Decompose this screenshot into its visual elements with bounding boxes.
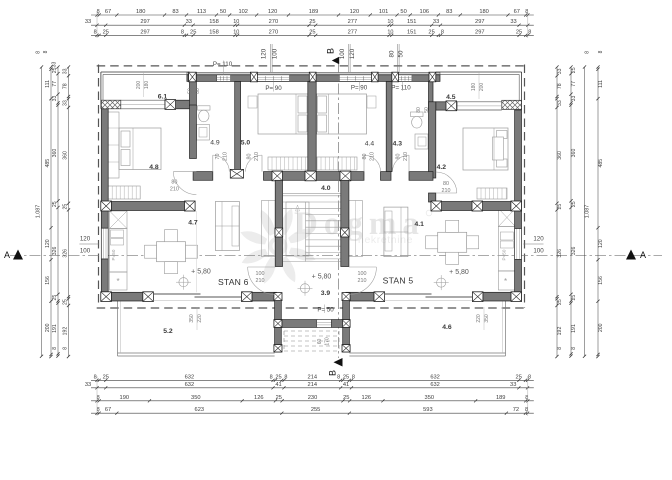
svg-text:100: 100 (256, 271, 265, 277)
svg-text:277: 277 (348, 19, 358, 25)
svg-text:297: 297 (140, 29, 150, 35)
svg-text:80: 80 (195, 88, 201, 94)
svg-text:STAN 5: STAN 5 (383, 276, 414, 286)
svg-text:50: 50 (424, 107, 430, 113)
svg-text:33: 33 (433, 19, 439, 25)
svg-text:4.3: 4.3 (393, 141, 403, 148)
svg-text:120: 120 (533, 236, 544, 243)
svg-text:25: 25 (309, 19, 315, 25)
svg-text:326: 326 (557, 249, 563, 258)
svg-text:632: 632 (185, 374, 195, 380)
svg-text:80: 80 (443, 181, 449, 187)
svg-text:632: 632 (185, 382, 195, 388)
svg-text:8: 8 (528, 374, 531, 380)
svg-text:120: 120 (261, 48, 268, 59)
svg-text:5.2: 5.2 (163, 328, 173, 335)
svg-text:101: 101 (379, 9, 389, 15)
svg-text:485: 485 (45, 159, 51, 168)
svg-text:50: 50 (400, 9, 406, 15)
svg-text:200: 200 (598, 323, 604, 332)
svg-text:4.4: 4.4 (365, 141, 375, 148)
svg-text:632: 632 (430, 374, 440, 380)
svg-text:200: 200 (45, 323, 51, 332)
svg-text:120: 120 (268, 9, 278, 15)
svg-text:210: 210 (442, 188, 451, 194)
svg-text:8: 8 (352, 374, 355, 380)
svg-text:4.7: 4.7 (188, 220, 198, 227)
svg-text:8: 8 (571, 347, 577, 350)
svg-text:190: 190 (120, 395, 130, 401)
svg-text:230: 230 (308, 395, 318, 401)
svg-text:120: 120 (45, 239, 51, 248)
svg-text:8: 8 (43, 50, 49, 53)
svg-text:8: 8 (181, 29, 184, 35)
svg-text:5.0: 5.0 (241, 140, 251, 147)
svg-text:33: 33 (63, 68, 69, 74)
svg-text:25: 25 (52, 295, 58, 301)
svg-text:191: 191 (52, 324, 58, 333)
svg-text:151: 151 (407, 29, 417, 35)
svg-text:8: 8 (598, 50, 604, 53)
svg-text:210: 210 (170, 187, 179, 193)
svg-text:25: 25 (557, 204, 563, 210)
svg-text:8: 8 (63, 347, 69, 350)
svg-text:8: 8 (284, 374, 287, 380)
svg-text:77: 77 (571, 81, 577, 87)
svg-text:120: 120 (80, 236, 91, 243)
svg-text:189: 189 (496, 395, 506, 401)
svg-text:70: 70 (215, 154, 221, 160)
svg-text:25: 25 (557, 299, 563, 305)
svg-text:80: 80 (362, 154, 368, 160)
svg-text:33: 33 (52, 62, 58, 68)
svg-text:10: 10 (387, 29, 393, 35)
svg-text:25: 25 (52, 201, 58, 207)
svg-text:100: 100 (533, 248, 544, 255)
svg-text:8: 8 (270, 374, 273, 380)
svg-text:25: 25 (190, 29, 196, 35)
svg-text:67: 67 (514, 9, 520, 15)
svg-text:*: * (116, 277, 119, 286)
svg-text:33: 33 (571, 96, 577, 102)
svg-text:192: 192 (557, 327, 563, 336)
svg-text:25: 25 (343, 374, 349, 380)
svg-text:106: 106 (420, 9, 430, 15)
svg-text:B: B (328, 370, 338, 376)
svg-text:8: 8 (525, 407, 528, 413)
svg-text:4.0: 4.0 (321, 185, 331, 192)
svg-text:33: 33 (557, 68, 563, 74)
svg-text:+ 5,80: + 5,80 (449, 269, 469, 276)
svg-text:25: 25 (516, 374, 522, 380)
svg-text:67: 67 (105, 407, 111, 413)
svg-text:210: 210 (223, 152, 229, 161)
svg-text:326: 326 (52, 246, 58, 255)
svg-text:1.087: 1.087 (584, 205, 590, 219)
svg-text:25: 25 (428, 29, 434, 35)
svg-text:180: 180 (471, 83, 477, 92)
svg-text:189: 189 (309, 9, 319, 15)
svg-text:126: 126 (254, 395, 264, 401)
svg-text:33: 33 (510, 19, 516, 25)
svg-text:111: 111 (598, 80, 604, 88)
svg-text:156: 156 (45, 276, 51, 285)
svg-text:P=50: P=50 (502, 249, 507, 260)
svg-text:180: 180 (144, 81, 150, 90)
svg-text:210: 210 (358, 278, 367, 284)
svg-text:60: 60 (317, 339, 323, 345)
svg-text:270: 270 (269, 29, 279, 35)
svg-text:50: 50 (188, 88, 194, 94)
svg-text:72: 72 (513, 407, 519, 413)
svg-text:P= 110: P= 110 (391, 85, 411, 92)
svg-text:25: 25 (275, 374, 281, 380)
svg-text:25: 25 (63, 204, 69, 210)
svg-text:4.2: 4.2 (437, 164, 447, 171)
svg-text:100: 100 (80, 248, 91, 255)
svg-text:80: 80 (247, 154, 253, 160)
svg-text:360: 360 (571, 149, 577, 158)
svg-text:83: 83 (446, 9, 452, 15)
svg-text:nekretnine: nekretnine (358, 234, 413, 246)
svg-text:151: 151 (407, 19, 417, 25)
svg-text:8: 8 (584, 51, 590, 54)
svg-text:P= 50: P= 50 (317, 307, 334, 314)
svg-text:78: 78 (63, 83, 69, 89)
svg-text:10: 10 (233, 19, 239, 25)
svg-text:8: 8 (557, 347, 563, 350)
svg-text:158: 158 (209, 29, 219, 35)
svg-text:350: 350 (484, 314, 490, 323)
svg-text:A: A (640, 250, 646, 260)
svg-text:297: 297 (475, 19, 485, 25)
svg-text:50: 50 (220, 9, 226, 15)
svg-text:8: 8 (94, 29, 97, 35)
svg-text:4.5: 4.5 (446, 94, 456, 101)
svg-text:25: 25 (309, 29, 315, 35)
svg-text:41: 41 (343, 382, 349, 388)
svg-text:41: 41 (275, 382, 281, 388)
svg-text:8: 8 (441, 29, 444, 35)
svg-text:+ 5,80: + 5,80 (191, 269, 211, 276)
svg-text:+ 5,80: + 5,80 (312, 274, 332, 281)
svg-text:25: 25 (103, 29, 109, 35)
svg-text:33: 33 (510, 382, 516, 388)
svg-text:8: 8 (94, 374, 97, 380)
svg-text:297: 297 (475, 29, 485, 35)
svg-text:297: 297 (140, 19, 150, 25)
svg-text:25: 25 (343, 395, 349, 401)
svg-text:80: 80 (171, 180, 177, 186)
svg-text:360: 360 (52, 149, 58, 158)
svg-text:350: 350 (425, 395, 435, 401)
svg-text:STAN 6: STAN 6 (218, 277, 249, 287)
svg-text:B: B (326, 48, 336, 54)
svg-text:100: 100 (358, 271, 367, 277)
svg-text:210: 210 (370, 152, 376, 161)
svg-text:156: 156 (598, 276, 604, 285)
svg-text:80: 80 (389, 50, 396, 57)
svg-text:80: 80 (396, 154, 402, 160)
svg-text:8: 8 (528, 29, 531, 35)
svg-text:33: 33 (63, 100, 69, 106)
svg-text:25: 25 (276, 395, 282, 401)
svg-text:220: 220 (197, 314, 203, 323)
svg-text:6.1: 6.1 (158, 94, 168, 101)
svg-text:126: 126 (362, 395, 372, 401)
svg-text:255: 255 (311, 407, 321, 413)
svg-text:8: 8 (36, 51, 42, 54)
svg-text:360: 360 (63, 151, 69, 160)
svg-text:593: 593 (423, 407, 433, 413)
svg-text:4.9: 4.9 (210, 140, 220, 147)
svg-text:210: 210 (254, 152, 260, 161)
svg-text:111: 111 (45, 80, 51, 88)
svg-text:10: 10 (233, 29, 239, 35)
svg-text:67: 67 (105, 9, 111, 15)
svg-text:360: 360 (557, 151, 563, 160)
svg-text:4.8: 4.8 (149, 164, 159, 171)
svg-text:192: 192 (63, 327, 69, 336)
svg-text:200: 200 (136, 81, 142, 90)
svg-text:A: A (4, 250, 10, 260)
svg-text:50: 50 (398, 50, 405, 57)
svg-text:25: 25 (103, 374, 109, 380)
svg-text:3.9: 3.9 (321, 290, 331, 297)
svg-text:632: 632 (430, 382, 440, 388)
svg-text:25: 25 (571, 67, 577, 73)
svg-text:102: 102 (238, 9, 248, 15)
svg-text:P=50: P=50 (111, 249, 116, 260)
svg-text:8: 8 (337, 374, 340, 380)
svg-text:*: * (504, 277, 507, 286)
svg-text:25: 25 (516, 29, 522, 35)
svg-text:100: 100 (272, 48, 279, 59)
svg-text:180: 180 (479, 9, 489, 15)
svg-text:170: 170 (325, 337, 331, 346)
svg-text:350: 350 (189, 314, 195, 323)
svg-text:10: 10 (387, 19, 393, 25)
svg-text:623: 623 (195, 407, 205, 413)
svg-text:158: 158 (209, 19, 219, 25)
svg-text:270: 270 (269, 19, 279, 25)
svg-text:83: 83 (172, 9, 178, 15)
svg-text:P= 110: P= 110 (213, 61, 233, 68)
svg-text:214: 214 (308, 382, 318, 388)
svg-text:33: 33 (85, 19, 91, 25)
svg-text:25: 25 (571, 295, 577, 301)
svg-text:33: 33 (85, 382, 91, 388)
svg-text:113: 113 (197, 9, 206, 15)
svg-text:326: 326 (571, 246, 577, 255)
svg-text:1.087: 1.087 (36, 205, 42, 219)
svg-text:120: 120 (350, 9, 360, 15)
svg-text:220: 220 (476, 314, 482, 323)
svg-text:100: 100 (339, 48, 346, 59)
svg-text:25: 25 (571, 201, 577, 207)
svg-text:33: 33 (186, 19, 192, 25)
svg-text:120: 120 (598, 239, 604, 248)
svg-text:277: 277 (348, 29, 358, 35)
svg-text:33: 33 (52, 96, 58, 102)
svg-text:78: 78 (557, 83, 563, 89)
svg-text:P= 90: P= 90 (265, 85, 282, 92)
svg-text:80: 80 (416, 107, 422, 113)
svg-text:191: 191 (571, 324, 577, 333)
svg-text:485: 485 (598, 159, 604, 168)
svg-text:326: 326 (63, 249, 69, 258)
svg-text:4.6: 4.6 (442, 324, 452, 331)
svg-text:350: 350 (191, 395, 201, 401)
svg-text:8: 8 (52, 347, 58, 350)
svg-text:77: 77 (52, 81, 58, 87)
svg-text:214: 214 (308, 374, 318, 380)
svg-text:33: 33 (557, 100, 563, 106)
svg-text:25: 25 (63, 299, 69, 305)
svg-text:210: 210 (256, 278, 265, 284)
svg-text:210: 210 (403, 152, 409, 161)
svg-text:200: 200 (479, 83, 485, 92)
svg-text:180: 180 (136, 9, 146, 15)
svg-text:4.1: 4.1 (414, 221, 424, 228)
